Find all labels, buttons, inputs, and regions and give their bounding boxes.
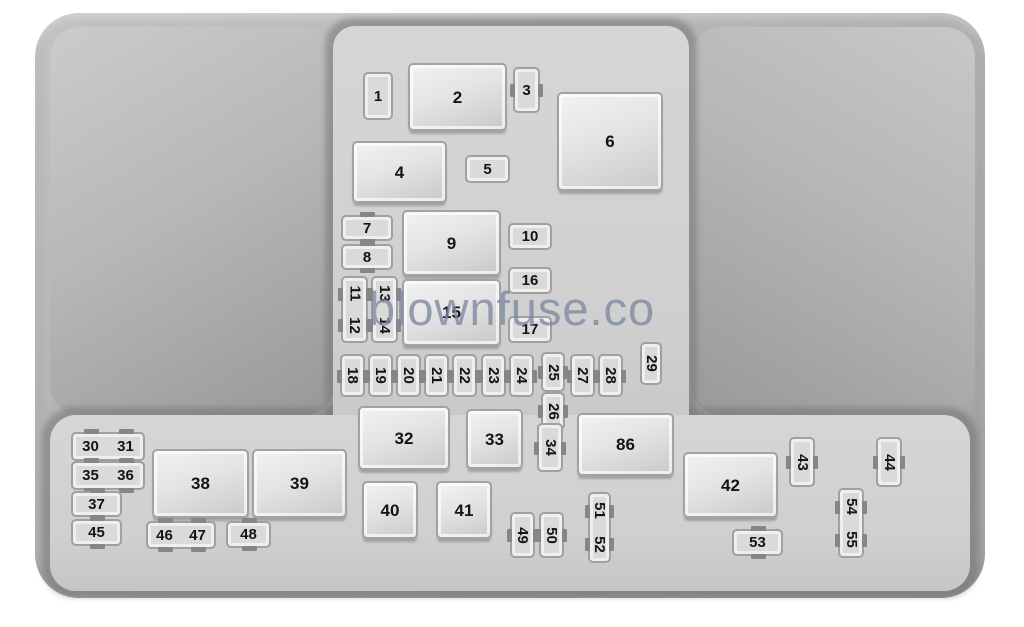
component-cell: 29 (642, 344, 660, 383)
component-cell: 49 (512, 514, 533, 556)
component-label: 54 (844, 498, 859, 515)
component-label: 37 (88, 497, 105, 512)
component-label: 2 (453, 89, 462, 106)
component-label: 33 (485, 431, 504, 448)
fuse-34: 34 (537, 423, 563, 472)
fuse-23: 23 (481, 354, 506, 397)
component-cell: 22 (454, 356, 475, 395)
component-cell: 10 (510, 225, 550, 248)
relay-40: 40 (362, 481, 418, 539)
component-cell: 4 (354, 143, 445, 201)
component-cell: 5 (467, 157, 508, 181)
component-cell: 27 (572, 356, 593, 395)
component-label: 53 (749, 535, 766, 550)
component-label: 55 (844, 531, 859, 548)
component-label: 10 (522, 229, 539, 244)
component-cell: 55 (840, 523, 862, 556)
fuse-37: 37 (71, 491, 122, 517)
relay-42: 42 (683, 452, 778, 518)
component-label: 30 (82, 439, 99, 454)
relay-33: 33 (466, 409, 523, 469)
fuse-53: 53 (732, 529, 783, 556)
fuse-24: 24 (509, 354, 534, 397)
relay-6: 6 (557, 92, 663, 191)
component-label: 52 (592, 536, 607, 553)
component-label: 51 (592, 502, 607, 519)
component-label: 48 (240, 527, 257, 542)
component-label: 50 (544, 527, 559, 544)
component-cell: 44 (878, 439, 900, 485)
component-cell: 25 (543, 354, 563, 390)
component-label: 49 (515, 527, 530, 544)
component-cell: 54 (840, 490, 862, 523)
component-cell: 34 (539, 425, 561, 470)
fuse-49: 49 (510, 512, 535, 558)
component-cell: 21 (426, 356, 447, 395)
component-label: 24 (514, 367, 529, 384)
component-label: 29 (644, 355, 659, 372)
component-cell: 1 (365, 74, 391, 118)
component-cell: 23 (483, 356, 504, 395)
fuse-46-47: 4647 (146, 521, 216, 549)
fuse-30-31: 3031 (71, 432, 145, 461)
relay-2: 2 (408, 63, 507, 131)
component-label: 23 (486, 367, 501, 384)
component-cell: 52 (590, 528, 609, 562)
component-label: 86 (616, 436, 635, 453)
component-cell: 43 (791, 439, 813, 485)
fuse-1: 1 (363, 72, 393, 120)
component-cell: 38 (154, 451, 247, 516)
component-cell: 11 (343, 278, 366, 310)
component-label: 5 (483, 162, 491, 177)
component-label: 34 (543, 439, 558, 456)
component-label: 8 (363, 250, 371, 265)
component-label: 46 (156, 528, 173, 543)
component-cell: 8 (343, 246, 391, 268)
fuse-28: 28 (598, 354, 623, 397)
fuse-19: 19 (368, 354, 393, 397)
component-cell: 24 (511, 356, 532, 395)
component-cell: 51 (590, 494, 609, 528)
component-label: 19 (373, 367, 388, 384)
component-label: 45 (88, 525, 105, 540)
component-label: 32 (395, 430, 414, 447)
component-cell: 35 (73, 463, 108, 488)
component-label: 42 (721, 477, 740, 494)
relay-4: 4 (352, 141, 447, 203)
component-cell: 2 (410, 65, 505, 129)
fuse-48: 48 (226, 521, 271, 548)
component-cell: 47 (181, 523, 214, 547)
watermark-text: blownfuse.co (369, 281, 655, 336)
relay-41: 41 (436, 481, 492, 539)
component-label: 26 (546, 403, 561, 420)
fuse-20: 20 (396, 354, 421, 397)
component-label: 36 (117, 468, 134, 483)
fuse-3: 3 (513, 67, 540, 113)
component-label: 9 (447, 235, 456, 252)
fuse-box-diagram: 1234567891011121314151617181920212223242… (0, 0, 1024, 627)
component-cell: 45 (73, 521, 120, 544)
fuse-11-12: 1112 (341, 276, 368, 343)
component-cell: 46 (148, 523, 181, 547)
fuse-54-55: 5455 (838, 488, 864, 558)
fuse-21: 21 (424, 354, 449, 397)
fuse-45: 45 (71, 519, 122, 546)
component-cell: 53 (734, 531, 781, 554)
component-label: 12 (347, 317, 362, 334)
component-label: 21 (429, 367, 444, 384)
fuse-5: 5 (465, 155, 510, 183)
component-label: 47 (189, 528, 206, 543)
component-cell: 30 (73, 434, 108, 459)
component-label: 18 (345, 367, 360, 384)
component-cell: 39 (254, 451, 345, 516)
component-label: 22 (457, 367, 472, 384)
fuse-10: 10 (508, 223, 552, 250)
fuse-29: 29 (640, 342, 662, 385)
component-cell: 37 (73, 493, 120, 515)
relay-32: 32 (358, 406, 450, 470)
relay-9: 9 (402, 210, 501, 276)
component-cell: 6 (559, 94, 661, 189)
fuse-27: 27 (570, 354, 595, 397)
fuse-25: 25 (541, 352, 565, 392)
fuse-51-52: 5152 (588, 492, 611, 563)
component-cell: 32 (360, 408, 448, 468)
component-cell: 36 (108, 463, 143, 488)
relay-86: 86 (577, 413, 674, 476)
fuse-8: 8 (341, 244, 393, 270)
component-cell: 3 (515, 69, 538, 111)
fuse-50: 50 (539, 512, 564, 558)
component-cell: 41 (438, 483, 490, 537)
component-label: 39 (290, 475, 309, 492)
component-cell: 9 (404, 212, 499, 274)
component-cell: 7 (343, 217, 391, 239)
component-cell: 12 (343, 310, 366, 342)
component-label: 35 (82, 468, 99, 483)
fuse-7: 7 (341, 215, 393, 241)
component-label: 31 (117, 439, 134, 454)
component-label: 40 (381, 502, 400, 519)
component-label: 7 (363, 221, 371, 236)
component-cell: 50 (541, 514, 562, 556)
relay-39: 39 (252, 449, 347, 518)
component-label: 28 (603, 367, 618, 384)
fuse-43: 43 (789, 437, 815, 487)
fuse-35-36: 3536 (71, 461, 145, 490)
component-label: 20 (401, 367, 416, 384)
component-cell: 40 (364, 483, 416, 537)
relay-38: 38 (152, 449, 249, 518)
component-cell: 48 (228, 523, 269, 546)
component-label: 44 (882, 454, 897, 471)
component-label: 4 (395, 164, 404, 181)
component-label: 41 (455, 502, 474, 519)
fuse-18: 18 (340, 354, 365, 397)
component-cell: 86 (579, 415, 672, 474)
component-label: 27 (575, 367, 590, 384)
component-cell: 33 (468, 411, 521, 467)
component-cell: 19 (370, 356, 391, 395)
component-label: 38 (191, 475, 210, 492)
component-cell: 42 (685, 454, 776, 516)
component-label: 3 (522, 83, 530, 98)
component-cell: 28 (600, 356, 621, 395)
component-label: 1 (374, 89, 382, 104)
component-cell: 20 (398, 356, 419, 395)
component-label: 6 (605, 133, 614, 150)
fuse-44: 44 (876, 437, 902, 487)
component-cell: 31 (108, 434, 143, 459)
component-label: 25 (546, 364, 561, 381)
component-label: 43 (795, 454, 810, 471)
component-cell: 18 (342, 356, 363, 395)
component-label: 11 (347, 286, 362, 302)
fuse-22: 22 (452, 354, 477, 397)
